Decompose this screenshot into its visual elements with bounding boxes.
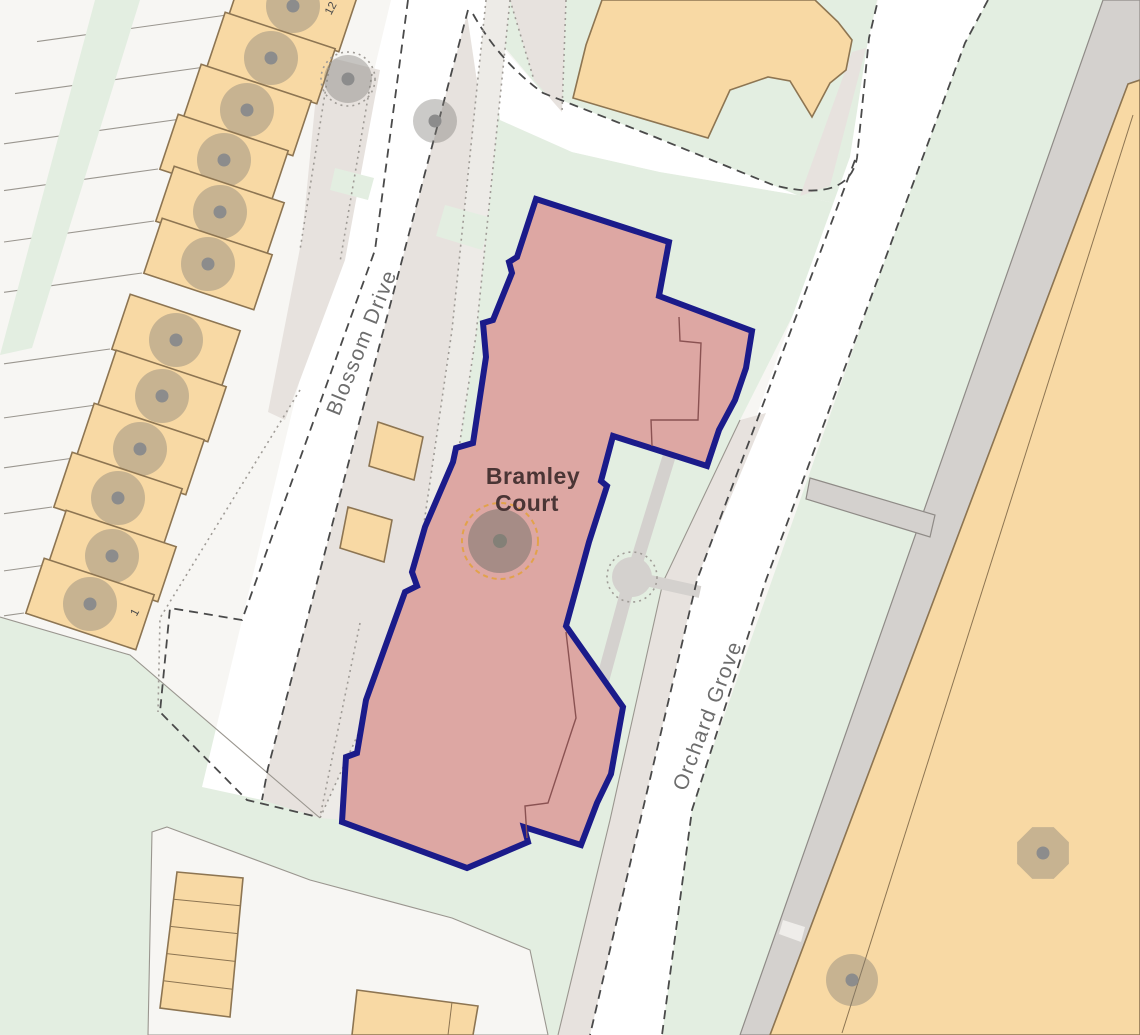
tree-center-dot <box>106 550 119 563</box>
tree-center-dot <box>241 104 254 117</box>
tree-center-dot <box>1037 847 1050 860</box>
tree-center-dot <box>84 598 97 611</box>
property-name-line1: Bramley <box>486 463 580 489</box>
property-name-line2: Court <box>495 490 559 516</box>
tree-center-dot <box>112 492 125 505</box>
tree-center-dot <box>202 258 215 271</box>
tree-center-dot <box>218 154 231 167</box>
tree-center-dot <box>170 334 183 347</box>
courtyard-tree-dot <box>493 534 507 548</box>
site-map-page: Bramley Court Blossom Drive Orchard Grov… <box>0 0 1140 1035</box>
tree-center-dot <box>846 974 859 987</box>
tree-center-dot <box>214 206 227 219</box>
tree-center-dot <box>429 115 442 128</box>
tree-center-dot <box>134 443 147 456</box>
tree-center-dot <box>156 390 169 403</box>
tree-center-dot <box>342 73 355 86</box>
tree-center-dot <box>287 0 300 13</box>
site-map[interactable]: Bramley Court Blossom Drive Orchard Grov… <box>0 0 1140 1035</box>
tree-center-dot <box>265 52 278 65</box>
